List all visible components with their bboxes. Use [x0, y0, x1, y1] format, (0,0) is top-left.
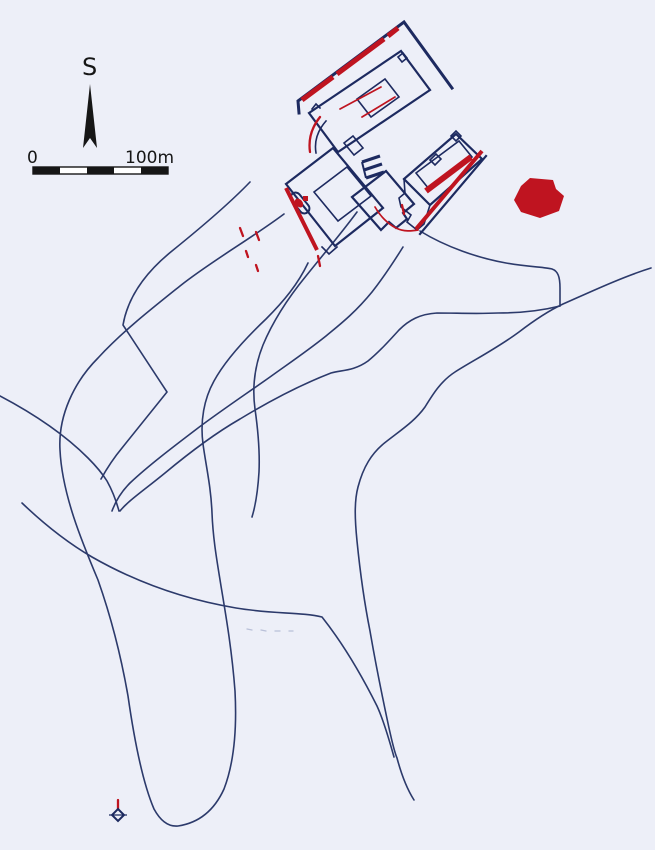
building-complex [286, 22, 486, 254]
north-arrow-icon [83, 84, 97, 148]
red-features [240, 28, 564, 271]
red-dashes-west [240, 228, 259, 271]
scale-bar-segments [33, 167, 168, 174]
barn-outline [309, 51, 430, 152]
barn-top-annex [398, 53, 407, 62]
well-red-square [303, 196, 308, 201]
barn-red-line-2 [362, 97, 395, 117]
compass-label: S [82, 53, 97, 81]
boundary-junction-branch [120, 306, 560, 511]
barn-red-line-1 [340, 87, 381, 109]
cross-marker [109, 800, 127, 821]
scale-bar: 0 100m [27, 148, 174, 174]
west-red-wall-dash [318, 256, 320, 266]
boundary-centre-s [252, 212, 357, 517]
staircase-feature [362, 156, 384, 178]
site-plan-map: S 0 100m [0, 0, 655, 850]
compass: S [82, 53, 97, 148]
boundary-balloon [420, 231, 560, 306]
boundary-low-long [22, 503, 394, 757]
northwest-arc-wall [315, 121, 326, 153]
boundary-inner-tongue [101, 182, 250, 479]
scale-start-label: 0 [27, 148, 38, 168]
field-boundary-lines [0, 182, 651, 826]
boundary-upper-diagonal [112, 247, 403, 511]
red-area-polygon [514, 178, 564, 218]
boundary-right-long [355, 268, 651, 800]
west-house-inner-room [314, 167, 371, 221]
corridor-link [344, 136, 363, 155]
site-plan-page: S 0 100m [0, 0, 655, 850]
scale-end-label: 100m [125, 148, 174, 168]
faint-dashes [247, 629, 293, 631]
boundary-west-loop [60, 214, 308, 826]
